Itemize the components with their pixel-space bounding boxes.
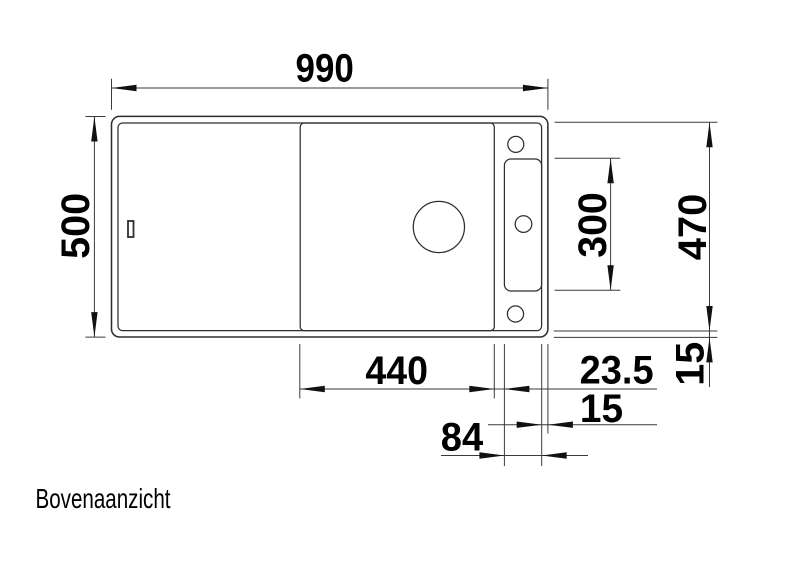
svg-text:15: 15: [580, 387, 623, 431]
svg-text:Bovenaanzicht: Bovenaanzicht: [36, 483, 171, 514]
svg-text:440: 440: [365, 349, 428, 393]
svg-text:990: 990: [296, 47, 354, 91]
svg-text:470: 470: [671, 194, 715, 261]
svg-text:23.5: 23.5: [580, 349, 654, 393]
svg-text:15: 15: [669, 342, 713, 386]
svg-text:500: 500: [54, 193, 98, 259]
svg-text:84: 84: [441, 416, 484, 460]
svg-text:300: 300: [571, 192, 615, 258]
